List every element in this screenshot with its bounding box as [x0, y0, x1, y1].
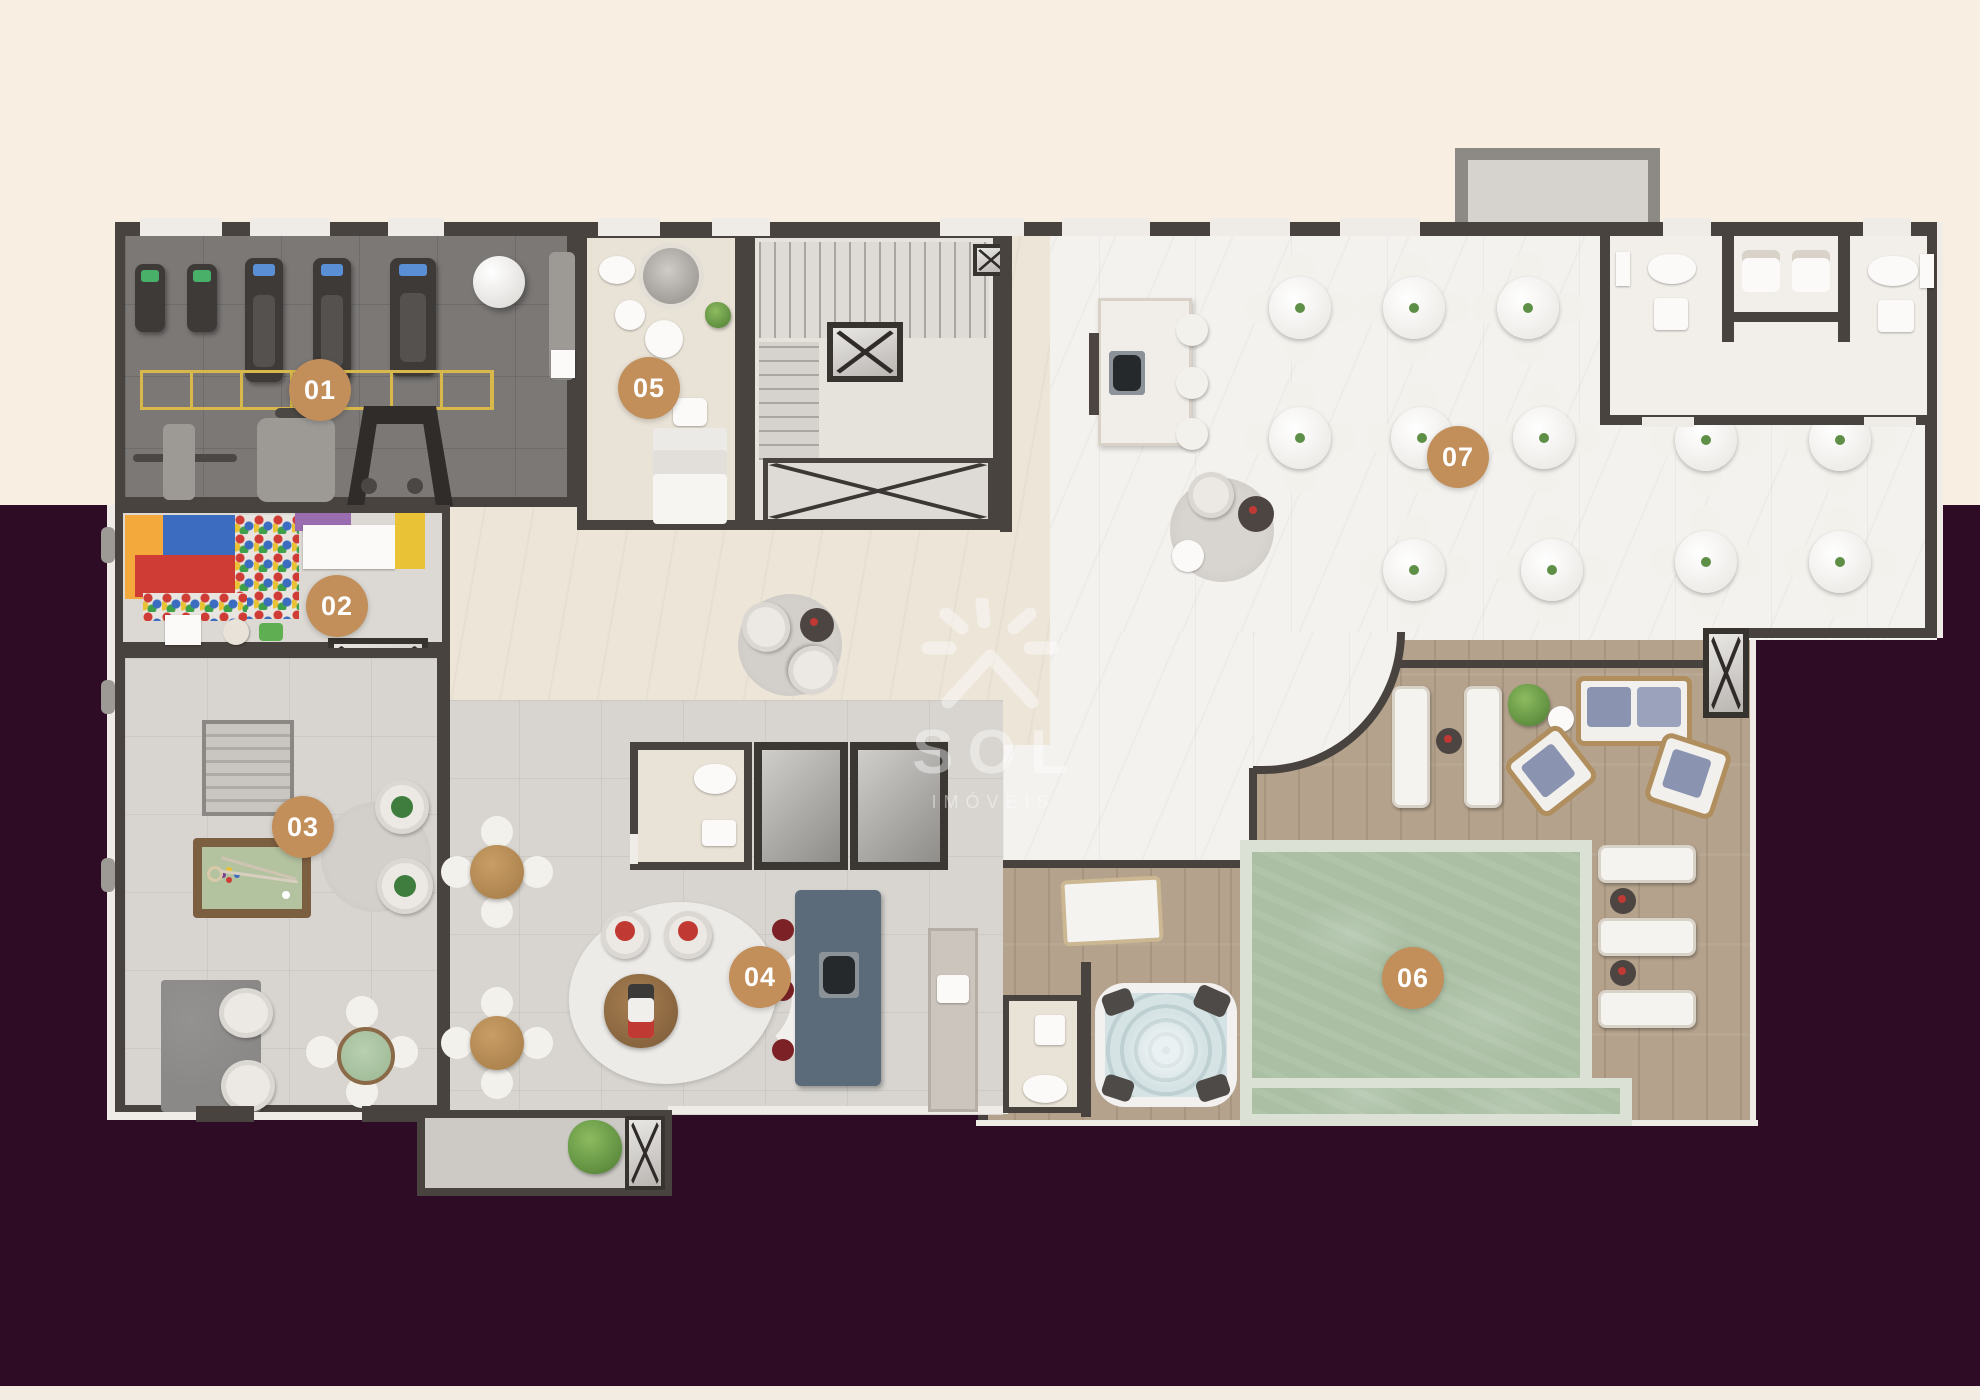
cooktop	[819, 952, 859, 998]
pool-lounger	[1598, 990, 1696, 1028]
island-stool	[1176, 367, 1208, 399]
bathroom-divider	[1838, 232, 1850, 342]
loveseat	[601, 911, 649, 959]
toilet	[1868, 256, 1918, 286]
deck-side-table	[1436, 728, 1462, 754]
window	[250, 218, 330, 236]
treadmill-belt	[253, 295, 274, 367]
red-cushion	[615, 921, 635, 941]
pouf	[1172, 540, 1204, 572]
outer-edge-left	[107, 505, 115, 1119]
vanity-sink	[1792, 250, 1830, 292]
door-gap	[1642, 417, 1694, 427]
sun-logo-icon	[915, 598, 1065, 710]
island-stool	[1176, 418, 1208, 450]
table-top	[1675, 531, 1737, 593]
area-badge-label: 07	[1442, 442, 1474, 473]
toilet	[1648, 254, 1696, 284]
towel-roll	[599, 256, 635, 284]
basin	[673, 398, 707, 426]
blue-cushion	[1587, 687, 1631, 727]
cushion	[391, 796, 413, 818]
island-stool	[1176, 314, 1208, 346]
outer-edge-right	[1937, 222, 1943, 638]
bathroom-jacuzzi	[1003, 995, 1083, 1113]
plant	[1508, 684, 1550, 726]
bathroom-divider	[1722, 232, 1734, 342]
dumbbell	[407, 478, 423, 494]
jacuzzi-pad	[1100, 1073, 1135, 1103]
plant	[568, 1120, 622, 1174]
toilet	[1023, 1075, 1067, 1103]
door-stub	[196, 1106, 254, 1122]
hall-bathrooms	[1600, 222, 1937, 425]
armchair	[221, 1060, 275, 1112]
island-shelf	[1089, 333, 1099, 415]
wall-segment	[1081, 962, 1091, 1117]
toy	[259, 623, 283, 641]
pool-lap-extension	[1240, 1078, 1632, 1126]
window	[1062, 218, 1150, 236]
armchair	[375, 780, 429, 834]
machine-screen	[253, 264, 276, 276]
wall-segment	[1000, 222, 1012, 532]
armchair	[377, 858, 433, 914]
deck-table	[1060, 875, 1163, 946]
treadmill-belt	[321, 295, 342, 367]
wall-segment	[437, 655, 449, 1115]
area-badge-label: 03	[287, 812, 319, 843]
service-box	[754, 742, 848, 870]
sink	[1035, 1015, 1065, 1045]
window	[140, 218, 222, 236]
area-badge-label: 05	[633, 373, 665, 404]
pool-side-table	[1610, 960, 1636, 986]
treadmill-belt	[400, 293, 426, 361]
table-top	[1809, 531, 1871, 593]
machine-screen	[399, 264, 427, 276]
area-badge-label: 04	[744, 962, 776, 993]
watermark-tagline: IMÓVEIS	[880, 792, 1100, 813]
table-top	[470, 845, 524, 899]
sun-lounger	[1464, 686, 1502, 808]
sink	[937, 975, 969, 1003]
cistern	[1920, 254, 1934, 288]
kids-play-mat	[303, 525, 395, 569]
jacuzzi-pad	[1194, 1073, 1231, 1104]
area-badge-06: 06	[1382, 947, 1444, 1009]
deck-top-wall	[1400, 660, 1705, 668]
entry-side-table	[1238, 496, 1274, 532]
gym-room	[115, 222, 577, 507]
amenities-floor-plan: 01 02 03 04 05 06 07 SOL IMÓVEIS	[0, 0, 1980, 1400]
area-badge-05: 05	[618, 357, 680, 419]
billiard-balls	[210, 869, 220, 879]
window	[940, 218, 1024, 236]
table-top	[1513, 407, 1575, 469]
door-stub	[362, 1106, 422, 1122]
table-top	[337, 1027, 395, 1085]
area-badge-label: 01	[304, 375, 336, 406]
wall-stub	[101, 858, 115, 892]
table-top	[470, 1016, 524, 1070]
spa-cabinet	[653, 428, 727, 524]
machine-screen	[141, 270, 159, 282]
wall-stub	[101, 527, 115, 563]
watermark: SOL IMÓVEIS	[880, 598, 1100, 813]
area-badge-04: 04	[729, 946, 791, 1008]
armchair	[219, 988, 273, 1038]
roof-protrusion-inner	[1468, 160, 1648, 226]
table-top	[1383, 539, 1445, 601]
plant	[705, 302, 731, 328]
kitchen-island	[795, 890, 881, 1086]
dumbbell	[361, 478, 377, 494]
weight-bench	[163, 424, 195, 500]
treadmill	[245, 258, 283, 382]
kids-mat-red	[135, 555, 239, 597]
blue-cushion	[1662, 748, 1712, 798]
area-badge-01: 01	[289, 359, 351, 421]
area-badge-02: 02	[306, 575, 368, 637]
exercise-ball	[473, 256, 525, 308]
watermark-brand: SOL	[880, 717, 1100, 788]
stairs-side	[759, 342, 819, 460]
bathroom-center	[630, 742, 752, 870]
window	[1210, 218, 1290, 236]
sun-lounger	[1392, 686, 1430, 808]
toilet	[694, 764, 736, 794]
jacuzzi	[1095, 983, 1237, 1107]
window	[1340, 218, 1420, 236]
table-top	[1521, 539, 1583, 601]
treadmill	[390, 258, 436, 376]
lobby-side-table	[800, 608, 834, 642]
gym-bench-white	[551, 350, 575, 378]
window	[1863, 218, 1911, 236]
games-room	[115, 648, 450, 1115]
table-top	[1383, 277, 1445, 339]
wall-stub	[101, 680, 115, 714]
machine-screen	[321, 264, 344, 276]
coffee-table	[604, 974, 678, 1048]
outer-edge-right-deck	[1750, 632, 1756, 1126]
stairs-lower	[763, 458, 993, 524]
blue-cushion	[1520, 743, 1576, 799]
cushion	[394, 875, 416, 897]
sink	[1878, 300, 1914, 332]
vanity-sink	[1742, 250, 1780, 292]
cue-ball	[282, 891, 290, 899]
pool-lounger	[1598, 918, 1696, 956]
serving-tray	[628, 984, 654, 1038]
ofuro-tub	[643, 248, 699, 304]
area-badge-07: 07	[1427, 426, 1489, 488]
pouf	[615, 300, 645, 330]
cistern	[1616, 252, 1630, 286]
machine-screen	[193, 270, 211, 282]
cooktop	[1109, 351, 1145, 395]
elliptical-machine	[187, 264, 217, 332]
kids-shelf-yellow	[395, 513, 425, 569]
background-bottom-band	[0, 1386, 1980, 1400]
door-gap	[1864, 417, 1916, 427]
table-top	[1269, 407, 1331, 469]
bar-stool	[772, 1039, 794, 1061]
door-gap	[630, 834, 638, 864]
hall-bottom-right-wall	[1748, 628, 1930, 638]
elevator	[827, 322, 903, 382]
toy-box	[165, 615, 201, 645]
jacuzzi-pad	[1100, 987, 1136, 1018]
entry-armchair	[1188, 472, 1234, 518]
window	[388, 218, 444, 236]
area-badge-03: 03	[272, 796, 334, 858]
kids-room	[115, 505, 450, 650]
wall-segment	[1003, 860, 1253, 868]
foosball-table	[202, 720, 294, 816]
window	[1663, 218, 1711, 236]
table-top	[1269, 277, 1331, 339]
bar-stool	[772, 919, 794, 941]
pouf	[645, 320, 683, 358]
kitchen-counter	[928, 928, 978, 1112]
sink	[1654, 298, 1688, 330]
weight-machine	[257, 418, 335, 502]
table-top	[1497, 277, 1559, 339]
area-badge-label: 02	[321, 591, 353, 622]
blue-cushion	[1637, 687, 1681, 727]
niche-wall	[1722, 312, 1850, 322]
teddy-bear	[223, 619, 249, 645]
pool-lounger	[1598, 845, 1696, 883]
red-cushion	[678, 921, 698, 941]
window	[712, 218, 770, 236]
sink	[702, 820, 736, 846]
area-badge-label: 06	[1397, 963, 1429, 994]
stair-core	[745, 228, 1003, 530]
pool-side-table	[1610, 888, 1636, 914]
elevator	[1703, 628, 1749, 718]
service-shaft	[625, 1116, 665, 1190]
elliptical-machine	[135, 264, 165, 332]
window	[598, 218, 660, 236]
